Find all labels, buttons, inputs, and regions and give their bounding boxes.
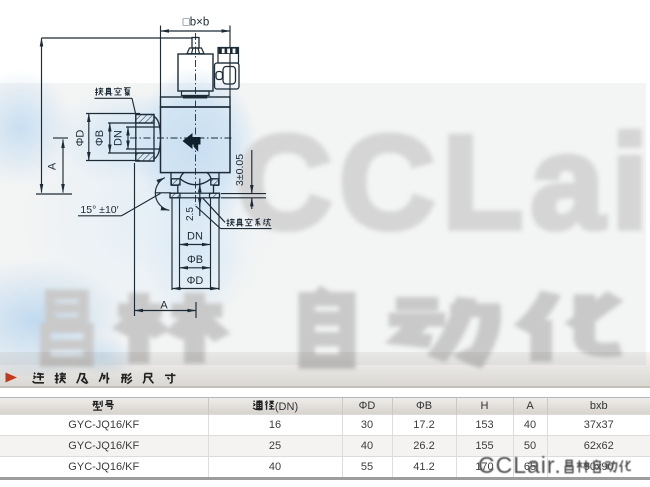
svg-text:2.5: 2.5 — [185, 207, 196, 221]
svg-text:DN: DN — [187, 231, 203, 243]
svg-text:A: A — [47, 162, 59, 170]
svg-text:DN: DN — [113, 130, 125, 146]
svg-text:3±0.05: 3±0.05 — [234, 154, 246, 186]
svg-text:ΦD: ΦD — [187, 275, 204, 287]
svg-text:□b×b: □b×b — [183, 17, 209, 29]
svg-text:A: A — [160, 300, 168, 312]
svg-text:ΦB: ΦB — [94, 130, 106, 146]
svg-text:ΦD: ΦD — [75, 130, 87, 147]
svg-text:15° ±10′: 15° ±10′ — [80, 204, 118, 216]
svg-text:ΦB: ΦB — [187, 254, 203, 266]
